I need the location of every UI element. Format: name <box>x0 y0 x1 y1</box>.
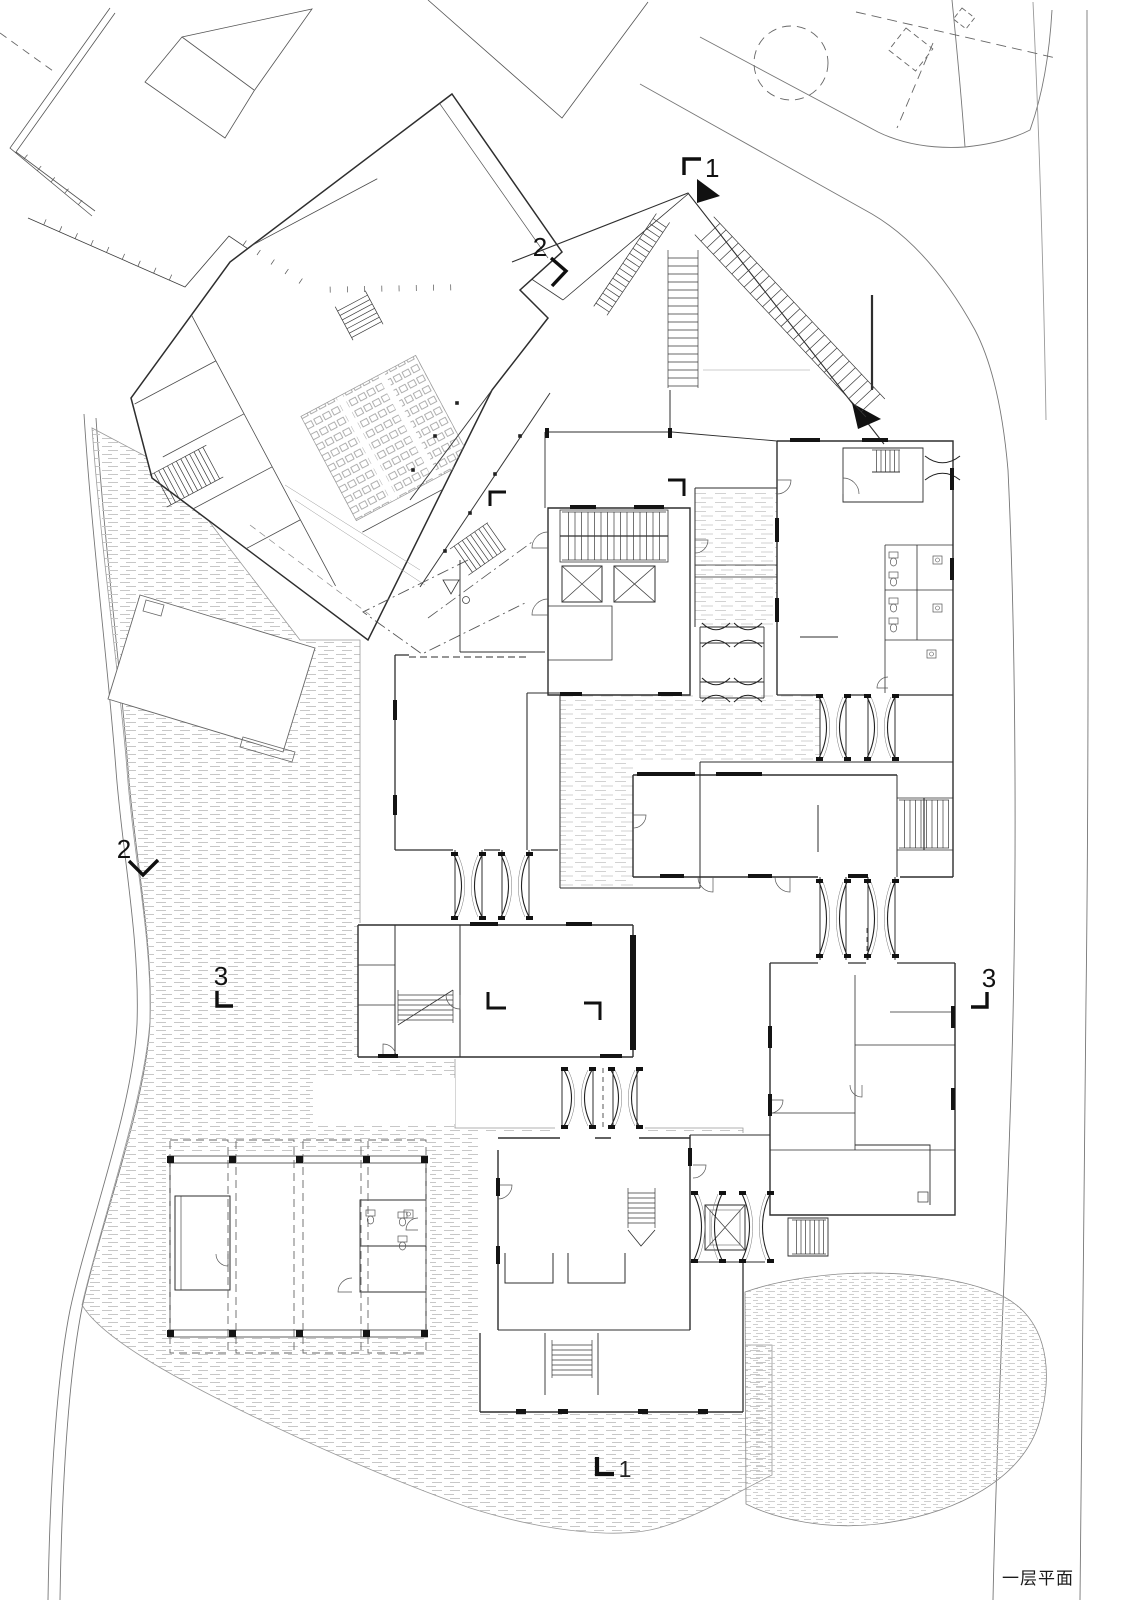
section-marker-3-right: 3 <box>971 963 996 1007</box>
section-marker-1-top-label: 1 <box>705 153 719 183</box>
plan-title: 一层平面 <box>1002 1569 1074 1589</box>
courtyard-hatch-north <box>695 490 777 627</box>
pond-hatch-southeast <box>745 1273 1046 1526</box>
center-hall-footprint <box>633 762 955 879</box>
connector-footprint <box>688 1133 772 1264</box>
context-building-parallelogram <box>145 9 312 138</box>
floor-plan-drawing: 1 2 2 3 3 1 一层平面 <box>0 0 1130 1600</box>
context-building-northwest <box>10 8 115 216</box>
existing-structure-dashed <box>889 28 933 71</box>
section-marker-2-top-label: 2 <box>533 232 547 262</box>
section-marker-1-bottom-label: 1 <box>619 1456 632 1482</box>
vestibule-band-se-footprint <box>816 877 897 963</box>
road-edge-east-outer <box>1080 10 1088 1600</box>
section-marker-1-top: 1 <box>684 153 719 183</box>
section-marker-3-right-label: 3 <box>982 963 996 993</box>
property-line-dashed-west <box>0 33 53 71</box>
road-edge-northeast <box>700 10 1052 147</box>
stair-treads <box>695 217 885 417</box>
ramp-arrow-outline <box>443 580 459 594</box>
southeast-block-footprint <box>768 960 957 1217</box>
northeast-block-footprint <box>775 438 955 698</box>
stair-treads <box>668 250 698 388</box>
road-edge-stub <box>952 0 965 147</box>
column-circle <box>463 597 470 604</box>
site-boundaries <box>0 8 1056 128</box>
core-footprint <box>545 430 693 697</box>
west-room-footprint <box>393 653 529 852</box>
room-extent-mark <box>490 492 506 506</box>
road-center-line <box>1033 2 1046 420</box>
stair-treads <box>792 1220 826 1254</box>
floor-plan-page: 1 2 2 3 3 1 一层平面 <box>0 0 1130 1600</box>
section-marker-2-left-label: 2 <box>117 834 131 864</box>
south-hall-footprint <box>358 923 635 1059</box>
context-building-divider <box>182 37 254 90</box>
property-line-dashed <box>856 12 1056 58</box>
stair-inner-edge <box>563 194 688 300</box>
plaza-notch <box>313 1078 455 1124</box>
tree-dashed-circle <box>754 26 828 100</box>
door-swing <box>775 877 790 892</box>
existing-structure-dashed-2 <box>953 8 974 29</box>
section-marker-3-left-label: 3 <box>214 961 228 991</box>
context-building-top-center <box>428 0 648 118</box>
